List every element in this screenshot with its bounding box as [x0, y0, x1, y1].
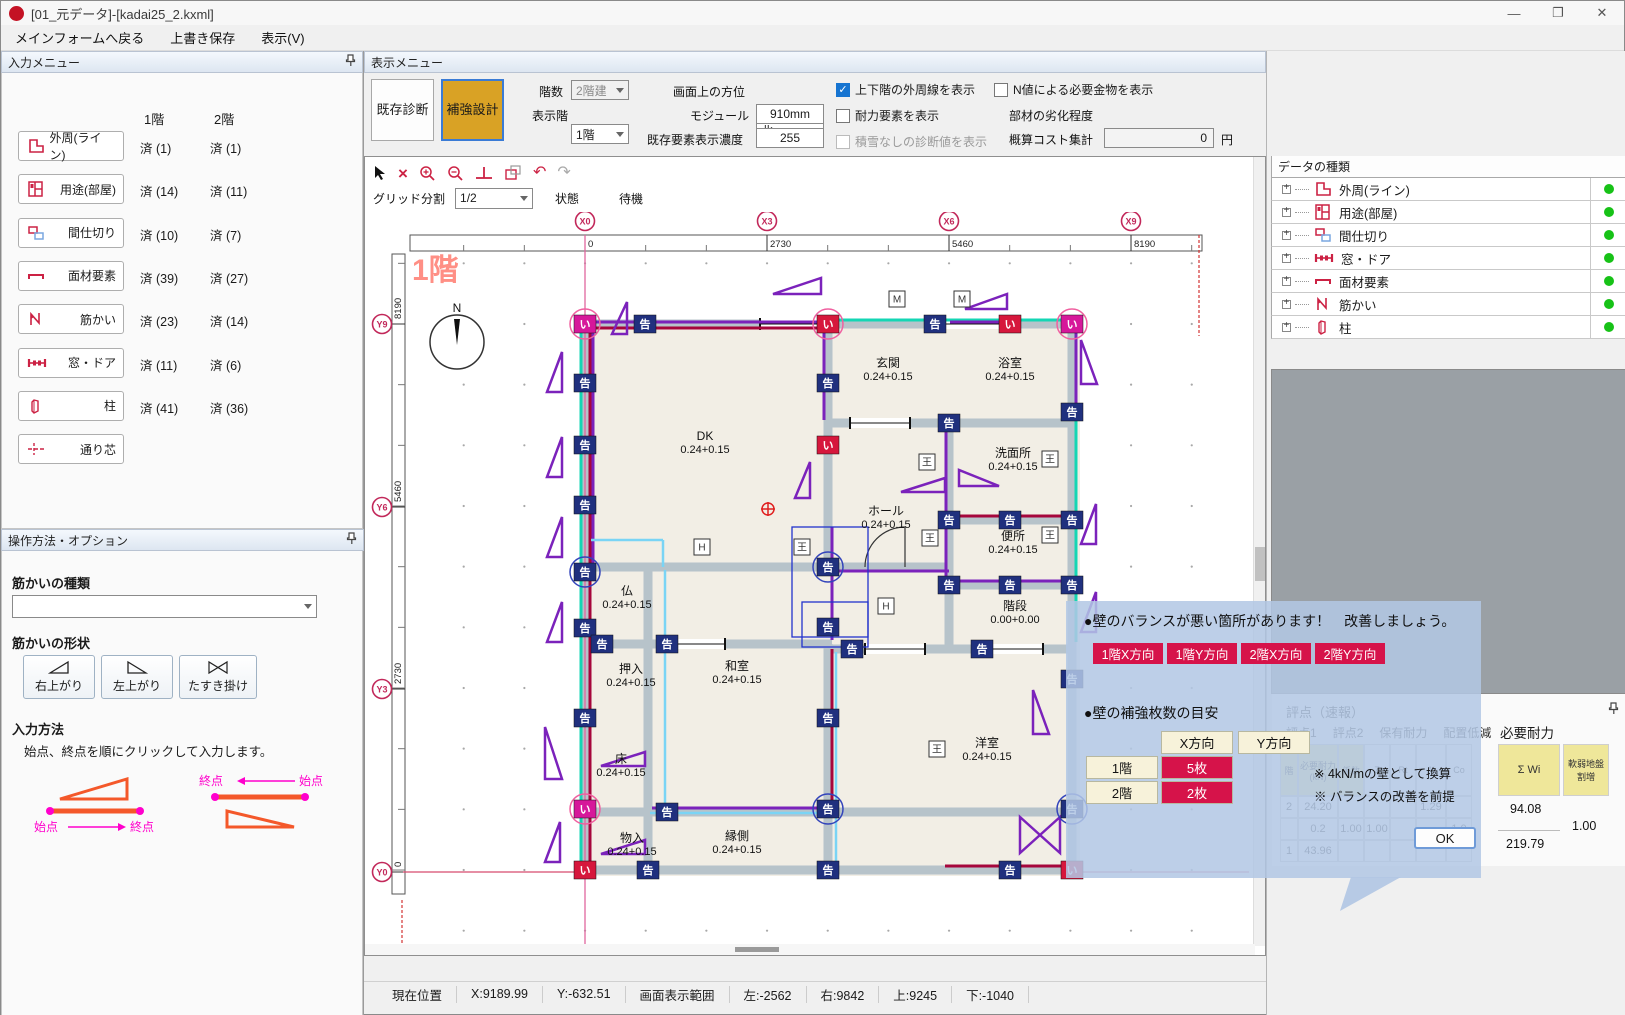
- input-menu-row: 筋かい 済 (23) 済 (14): [18, 304, 348, 334]
- soft-ground-value: 1.00: [1572, 819, 1596, 833]
- canvas-toolbar: × ↶ ↷: [373, 161, 571, 185]
- status-item: 画面表示範囲: [626, 986, 730, 1003]
- svg-text:告: 告: [640, 317, 651, 331]
- data-list-item-面材要素[interactable]: 面材要素: [1271, 270, 1625, 293]
- options-panel-title: 操作方法・オプション: [8, 532, 128, 549]
- options-panel-header: 操作方法・オプション: [1, 529, 364, 551]
- snap-perpendicular-icon[interactable]: [475, 165, 493, 181]
- svg-text:い: い: [580, 804, 591, 816]
- svg-text:X3: X3: [761, 217, 772, 227]
- popup-table-cell: Y方向: [1238, 731, 1310, 754]
- brace-type-label: 筋かいの種類: [12, 573, 90, 592]
- svg-text:告: 告: [1005, 578, 1016, 592]
- reinforcement-design-button[interactable]: 補強設計: [441, 79, 504, 141]
- svg-text:0.24+0.15: 0.24+0.15: [606, 677, 655, 689]
- cost-input: 0: [1104, 128, 1214, 148]
- svg-text:終点: 終点: [199, 773, 223, 788]
- data-list-item-間仕切り[interactable]: 間仕切り: [1271, 224, 1625, 247]
- status-green-dot: [1604, 299, 1614, 309]
- count-1f: 済 (10): [140, 225, 178, 244]
- svg-text:1階: 1階: [412, 254, 459, 287]
- count-1f: 済 (39): [140, 268, 178, 287]
- checkbox-N値による必要金物を表示[interactable]: N値による必要金物を表示: [994, 81, 1153, 98]
- status-green-dot: [1604, 322, 1614, 332]
- checkbox-icon: [836, 109, 850, 123]
- col-1f-header: 1階: [144, 109, 164, 128]
- ok-button[interactable]: OK: [1414, 827, 1476, 849]
- data-type-column-header: データの種類: [1271, 156, 1625, 178]
- pin-icon[interactable]: [344, 54, 356, 70]
- svg-text:DK: DK: [697, 429, 714, 443]
- app-window: [01_元データ]-[kadai25_2.kxml] — ❐ ✕ メインフォーム…: [0, 0, 1625, 1015]
- popup-guide-text: ●壁の補強枚数の目安: [1084, 703, 1218, 723]
- partition-icon: [26, 224, 46, 242]
- popup-table-cell: X方向: [1161, 731, 1233, 754]
- svg-text:0.24+0.15: 0.24+0.15: [602, 599, 651, 611]
- popup-table-cell: 5枚: [1161, 756, 1233, 779]
- popup-table-cell: 2枚: [1161, 781, 1233, 804]
- menu-view[interactable]: 表示(V): [261, 28, 304, 47]
- svg-text:い: い: [1005, 319, 1016, 331]
- expand-plus-icon[interactable]: [1282, 323, 1291, 332]
- close-button[interactable]: ✕: [1580, 1, 1624, 25]
- input-menu-title: 入力メニュー: [8, 54, 80, 71]
- input-menu-row: 用途(部屋) 済 (14) 済 (11): [18, 174, 348, 204]
- count-2f: 済 (1): [210, 138, 241, 157]
- svg-text:和室: 和室: [725, 658, 749, 673]
- svg-text:告: 告: [662, 805, 673, 819]
- wall-balance-popup: ●壁のバランスが悪い箇所があります！ 改善しましょう。 1階X方向1階Y方向2階…: [1066, 601, 1481, 878]
- svg-text:告: 告: [580, 498, 591, 512]
- svg-text:告: 告: [597, 637, 608, 651]
- zoom-out-icon[interactable]: [447, 165, 464, 182]
- status-green-dot: [1604, 207, 1614, 217]
- grid-line-icon: [26, 440, 48, 458]
- expand-plus-icon[interactable]: [1282, 231, 1291, 240]
- horizontal-scrollbar[interactable]: [365, 944, 1255, 955]
- svg-text:告: 告: [944, 416, 955, 430]
- outline-icon: [1313, 180, 1333, 198]
- pin-icon[interactable]: [345, 532, 357, 548]
- checkbox-icon: [836, 135, 850, 149]
- input-menu-row: 間仕切り 済 (10) 済 (7): [18, 218, 348, 248]
- svg-text:告: 告: [580, 438, 591, 452]
- svg-text:告: 告: [662, 637, 673, 651]
- svg-text:X0: X0: [579, 217, 590, 227]
- data-list-item-外周(ライン)[interactable]: 外周(ライン): [1271, 178, 1625, 201]
- input-method-text: 始点、終点を順にクリックして入力します。: [24, 741, 272, 760]
- brace-icon: [26, 310, 46, 328]
- svg-text:0.24+0.15: 0.24+0.15: [988, 461, 1037, 473]
- input-menu-body: 1階 2階 外周(ライン) 済 (1) 済 (1)用途(部屋) 済 (14) 済…: [1, 73, 363, 529]
- svg-text:い: い: [823, 440, 834, 452]
- minimize-button[interactable]: —: [1492, 1, 1536, 25]
- svg-text:告: 告: [823, 560, 834, 574]
- count-2f: 済 (6): [210, 355, 241, 374]
- status-green-dot: [1604, 230, 1614, 240]
- floors-label: 階数: [539, 83, 563, 100]
- input-brace-button[interactable]: 筋かい: [18, 304, 124, 334]
- brace-shape-label: 筋かいの形状: [12, 633, 90, 652]
- data-list-item-用途(部屋)[interactable]: 用途(部屋): [1271, 201, 1625, 224]
- count-2f: 済 (7): [210, 225, 241, 244]
- svg-text:告: 告: [1067, 405, 1078, 419]
- count-1f: 済 (41): [140, 398, 178, 417]
- svg-text:8190: 8190: [1134, 239, 1155, 250]
- svg-text:階段: 階段: [1003, 598, 1027, 613]
- svg-text:H: H: [698, 543, 705, 554]
- existing-diagnosis-button[interactable]: 既存診断: [371, 79, 434, 141]
- svg-text:0.24+0.15: 0.24+0.15: [712, 844, 761, 856]
- density-input[interactable]: 255: [756, 128, 824, 148]
- data-list-item-柱[interactable]: 柱: [1271, 316, 1625, 339]
- required-strength-title: 必要耐力: [1500, 722, 1554, 742]
- svg-text:H: H: [882, 602, 889, 613]
- count-2f: 済 (14): [210, 311, 248, 330]
- svg-text:Y6: Y6: [376, 503, 387, 513]
- menu-bar: メインフォームへ戻る 上書き保存 表示(V): [1, 25, 1624, 51]
- module-label: モジュール: [690, 107, 749, 124]
- expand-plus-icon[interactable]: [1282, 185, 1291, 194]
- partition-icon: [1313, 226, 1333, 244]
- svg-text:押入: 押入: [619, 662, 643, 676]
- svg-text:8190: 8190: [393, 298, 404, 319]
- svg-text:仏: 仏: [621, 584, 633, 598]
- canvas-grid-row: グリッド分割 1/2 状態 待機: [373, 187, 643, 209]
- svg-text:い: い: [580, 865, 591, 877]
- input-room-button[interactable]: 用途(部屋): [18, 174, 124, 204]
- select-cursor-icon[interactable]: [373, 165, 387, 181]
- svg-text:0.24+0.15: 0.24+0.15: [861, 519, 910, 531]
- svg-text:ホール: ホール: [868, 504, 904, 518]
- input-menu-row: 外周(ライン) 済 (1) 済 (1): [18, 131, 348, 161]
- svg-text:告: 告: [1005, 513, 1016, 527]
- shown-floor-select[interactable]: 1階: [571, 124, 629, 144]
- svg-text:洋室: 洋室: [975, 735, 999, 750]
- popup-note-1: ※ 4kN/mの壁として換算: [1314, 763, 1451, 782]
- col-2f-header: 2階: [214, 109, 234, 128]
- svg-text:0.24+0.15: 0.24+0.15: [985, 371, 1034, 383]
- cross-brace-icon: [207, 660, 229, 675]
- title-bar: [01_元データ]-[kadai25_2.kxml] — ❐ ✕: [1, 1, 1624, 25]
- panel-element-icon: [1313, 272, 1333, 290]
- status-green-dot: [1604, 276, 1614, 286]
- svg-text:王: 王: [932, 745, 942, 756]
- window-door-icon: [1313, 249, 1335, 267]
- status-item: 右:9842: [807, 986, 880, 1003]
- panel-element-icon: [26, 267, 46, 285]
- shown-floor-label: 表示階: [532, 107, 568, 124]
- status-item: 下:-1040: [952, 986, 1029, 1003]
- svg-text:縁側: 縁側: [725, 828, 749, 843]
- fit-view-icon[interactable]: [504, 165, 522, 181]
- svg-text:告: 告: [823, 802, 834, 816]
- soft-ground-header: 軟弱地盤割増: [1563, 744, 1609, 796]
- status-item: X:9189.99: [457, 986, 543, 1003]
- window-title: [01_元データ]-[kadai25_2.kxml]: [31, 4, 214, 23]
- cost-label: 概算コスト集計: [1009, 131, 1093, 148]
- svg-text:0.24+0.15: 0.24+0.15: [863, 371, 912, 383]
- svg-text:5460: 5460: [393, 481, 404, 502]
- svg-text:終点: 終点: [130, 819, 154, 834]
- count-1f: 済 (1): [140, 138, 171, 157]
- popup-table-cell: 1階: [1086, 756, 1158, 779]
- app-icon: [9, 6, 24, 21]
- data-list-item-窓・ドア[interactable]: 窓・ドア: [1271, 247, 1625, 270]
- expand-plus-icon[interactable]: [1282, 208, 1291, 217]
- balance-warning-badge: 2階X方向: [1241, 643, 1311, 664]
- svg-text:告: 告: [580, 621, 591, 635]
- svg-text:い: い: [580, 319, 591, 331]
- grid-divide-select[interactable]: 1/2: [455, 188, 533, 209]
- svg-text:X6: X6: [943, 217, 954, 227]
- svg-text:王: 王: [1045, 455, 1055, 466]
- input-outline-button[interactable]: 外周(ライン): [18, 131, 124, 161]
- data-list-item-筋かい[interactable]: 筋かい: [1271, 293, 1625, 316]
- checkbox-上下階の外周線を表示[interactable]: ✓上下階の外周線を表示: [836, 81, 987, 98]
- balance-warning-badge: 1階X方向: [1093, 643, 1163, 664]
- svg-text:N: N: [453, 301, 462, 315]
- svg-text:王: 王: [922, 458, 932, 469]
- balance-warning-badge: 2階Y方向: [1315, 643, 1385, 664]
- popup-warning-text: ●壁のバランスが悪い箇所があります！ 改善しましょう。: [1084, 611, 1455, 631]
- svg-text:物入: 物入: [620, 831, 644, 845]
- room-icon: [26, 180, 46, 198]
- popup-note-2: ※ バランスの改善を前提: [1314, 786, 1455, 805]
- status-item: 現在位置: [392, 986, 457, 1003]
- svg-text:告: 告: [580, 711, 591, 725]
- expand-plus-icon[interactable]: [1282, 254, 1291, 263]
- count-2f: 済 (27): [210, 268, 248, 287]
- menu-back-to-mainform[interactable]: メインフォームへ戻る: [15, 28, 144, 47]
- balance-warning-badge: 1階Y方向: [1167, 643, 1237, 664]
- checkbox-耐力要素を表示[interactable]: 耐力要素を表示: [836, 107, 987, 124]
- svg-text:0.24+0.15: 0.24+0.15: [607, 846, 656, 858]
- degrade-label: 部材の劣化程度: [1009, 107, 1093, 124]
- svg-text:Y0: Y0: [376, 868, 387, 878]
- count-2f: 済 (11): [210, 181, 247, 200]
- expand-plus-icon[interactable]: [1282, 277, 1291, 286]
- input-menu-row: 面材要素 済 (39) 済 (27): [18, 261, 348, 291]
- display-menu-panel: 表示メニュー 既存診断 補強設計 階数 2階建 表示階 1階 画面上の方位 北 …: [364, 51, 1266, 156]
- svg-text:始点: 始点: [34, 820, 58, 834]
- right-up-triangle-icon: [48, 660, 70, 675]
- svg-text:告: 告: [977, 642, 988, 656]
- svg-text:0.24+0.15: 0.24+0.15: [988, 544, 1037, 556]
- input-column-button[interactable]: 柱: [18, 391, 124, 421]
- svg-text:告: 告: [643, 863, 654, 877]
- svg-text:告: 告: [847, 642, 858, 656]
- display-menu-title: 表示メニュー: [371, 54, 443, 71]
- svg-text:0.24+0.15: 0.24+0.15: [680, 444, 729, 456]
- zoom-in-icon[interactable]: [419, 165, 436, 182]
- req-value-2f: 94.08: [1510, 802, 1541, 816]
- svg-text:5460: 5460: [952, 239, 973, 250]
- input-partition-button[interactable]: 間仕切り: [18, 218, 124, 248]
- vscroll-thumb[interactable]: [1255, 547, 1265, 581]
- svg-text:便所: 便所: [1001, 529, 1025, 543]
- svg-text:王: 王: [1045, 531, 1055, 542]
- brace-icon: [1313, 295, 1333, 313]
- chevron-down-icon: [304, 604, 312, 609]
- svg-text:床: 床: [615, 752, 627, 766]
- menu-overwrite-save[interactable]: 上書き保存: [170, 28, 235, 47]
- svg-text:王: 王: [925, 534, 935, 545]
- input-direction-diagram-2: 終点 始点: [197, 771, 347, 841]
- left-up-triangle-icon: [126, 660, 148, 675]
- count-1f: 済 (14): [140, 181, 178, 200]
- svg-text:告: 告: [580, 565, 591, 579]
- checkbox-icon: ✓: [836, 83, 850, 97]
- svg-text:洗面所: 洗面所: [995, 446, 1031, 460]
- svg-text:告: 告: [823, 711, 834, 725]
- svg-text:告: 告: [823, 376, 834, 390]
- data-list-view: データの種類 外周(ライン)用途(部屋)間仕切り窓・ドア面材要素筋かい柱: [1271, 156, 1625, 339]
- cost-unit: 円: [1221, 131, 1233, 148]
- count-1f: 済 (23): [140, 311, 178, 330]
- column-icon: [1313, 318, 1333, 336]
- svg-text:告: 告: [930, 317, 941, 331]
- brace-type-select[interactable]: [12, 595, 317, 618]
- expand-plus-icon[interactable]: [1282, 300, 1291, 309]
- status-item: 左:-2562: [730, 986, 807, 1003]
- svg-text:2730: 2730: [393, 663, 404, 684]
- svg-text:2730: 2730: [770, 239, 791, 250]
- checkbox-積雪なしの診断値を表示: 積雪なしの診断値を表示: [836, 133, 987, 150]
- column-icon: [26, 397, 46, 415]
- svg-text:0.00+0.00: 0.00+0.00: [990, 614, 1039, 626]
- popup-table-cell: 2階: [1086, 781, 1158, 804]
- count-2f: 済 (36): [210, 398, 248, 417]
- req-value-1f: 219.79: [1506, 837, 1544, 851]
- svg-text:Y9: Y9: [376, 320, 387, 330]
- svg-text:い: い: [823, 319, 834, 331]
- window-door-icon: [26, 354, 48, 372]
- shape-right-up-button[interactable]: 右上がり: [23, 655, 95, 699]
- svg-text:0: 0: [393, 862, 404, 867]
- room-icon: [1313, 203, 1333, 221]
- svg-text:0: 0: [588, 239, 593, 250]
- hscroll-thumb[interactable]: [735, 947, 779, 952]
- outline-icon: [26, 137, 46, 155]
- svg-text:告: 告: [1005, 863, 1016, 877]
- svg-text:告: 告: [944, 578, 955, 592]
- options-panel-body: 筋かいの種類 筋かいの形状 右上がり 左上がり たすき掛け 入力方法 始点、終点…: [1, 551, 363, 1015]
- floors-select: 2階建: [571, 80, 629, 100]
- input-method-label: 入力方法: [12, 719, 64, 738]
- svg-text:X9: X9: [1125, 217, 1136, 227]
- count-1f: 済 (11): [140, 355, 177, 374]
- pin-icon[interactable]: [1607, 702, 1619, 718]
- direction-label: 画面上の方位: [673, 83, 745, 100]
- delete-icon[interactable]: ×: [398, 165, 408, 182]
- svg-text:告: 告: [823, 863, 834, 877]
- input-menu-row: 通り芯: [18, 434, 348, 464]
- svg-text:い: い: [1067, 319, 1078, 331]
- state-value: 待機: [619, 190, 643, 207]
- svg-text:Y3: Y3: [376, 685, 387, 695]
- maximize-button[interactable]: ❐: [1536, 1, 1580, 25]
- input-panel-button[interactable]: 面材要素: [18, 261, 124, 291]
- undo-icon[interactable]: ↶: [533, 165, 546, 181]
- svg-text:玄関: 玄関: [876, 355, 900, 370]
- input-windoor-button[interactable]: 窓・ドア: [18, 348, 124, 378]
- input-gridline-button[interactable]: 通り芯: [18, 434, 124, 464]
- checkbox-icon: [994, 83, 1008, 97]
- svg-text:告: 告: [944, 513, 955, 527]
- display-menu-header: 表示メニュー: [364, 51, 1266, 73]
- svg-text:0.24+0.15: 0.24+0.15: [962, 751, 1011, 763]
- svg-text:浴室: 浴室: [998, 355, 1022, 370]
- density-label: 既存要素表示濃度: [647, 131, 743, 148]
- svg-text:0.24+0.15: 0.24+0.15: [596, 767, 645, 779]
- svg-text:王: 王: [797, 543, 807, 554]
- input-direction-diagram-1: 始点 終点: [32, 771, 182, 841]
- svg-text:始点: 始点: [299, 774, 323, 788]
- svg-text:0.24+0.15: 0.24+0.15: [712, 674, 761, 686]
- input-menu-header: 入力メニュー: [1, 51, 363, 73]
- svg-text:告: 告: [823, 620, 834, 634]
- svg-text:M: M: [958, 295, 966, 306]
- left-sidebar: 入力メニュー 1階 2階 外周(ライン) 済 (1) 済 (1)用途(部屋) 済…: [1, 51, 364, 1015]
- shape-left-up-button[interactable]: 左上がり: [101, 655, 173, 699]
- status-green-dot: [1604, 184, 1614, 194]
- shape-cross-button[interactable]: たすき掛け: [179, 655, 257, 699]
- status-bar: 現在位置X:9189.99Y:-632.51画面表示範囲左:-2562右:984…: [364, 981, 1266, 1006]
- svg-text:M: M: [893, 295, 901, 306]
- module-input[interactable]: 910mm: [756, 104, 824, 124]
- svg-text:告: 告: [1067, 513, 1078, 527]
- state-label: 状態: [555, 190, 579, 207]
- grid-divide-label: グリッド分割: [373, 190, 445, 207]
- status-item: Y:-632.51: [543, 986, 626, 1003]
- svg-text:告: 告: [1067, 578, 1078, 592]
- status-item: 上:9245: [879, 986, 952, 1003]
- svg-text:告: 告: [580, 376, 591, 390]
- input-menu-row: 窓・ドア 済 (11) 済 (6): [18, 348, 348, 378]
- sigma-wi-header: Σ Wi: [1498, 744, 1560, 796]
- status-green-dot: [1604, 253, 1614, 263]
- input-menu-row: 柱 済 (41) 済 (36): [18, 391, 348, 421]
- redo-icon[interactable]: ↷: [557, 165, 570, 181]
